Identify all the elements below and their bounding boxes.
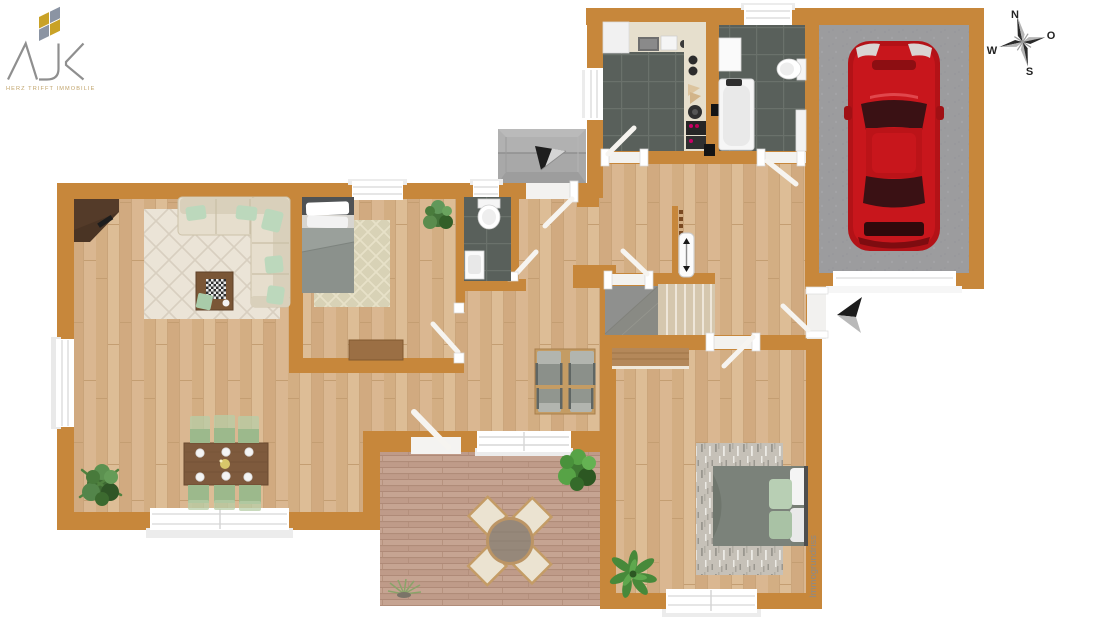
svg-text:W: W — [987, 45, 998, 57]
svg-text:Immogrundriss: Immogrundriss — [808, 535, 819, 598]
svg-text:O: O — [1047, 30, 1056, 42]
svg-text:N: N — [1011, 9, 1019, 21]
svg-text:HERZ TRIFFT IMMOBILIE: HERZ TRIFFT IMMOBILIE — [6, 86, 95, 92]
svg-text:S: S — [1026, 66, 1033, 78]
